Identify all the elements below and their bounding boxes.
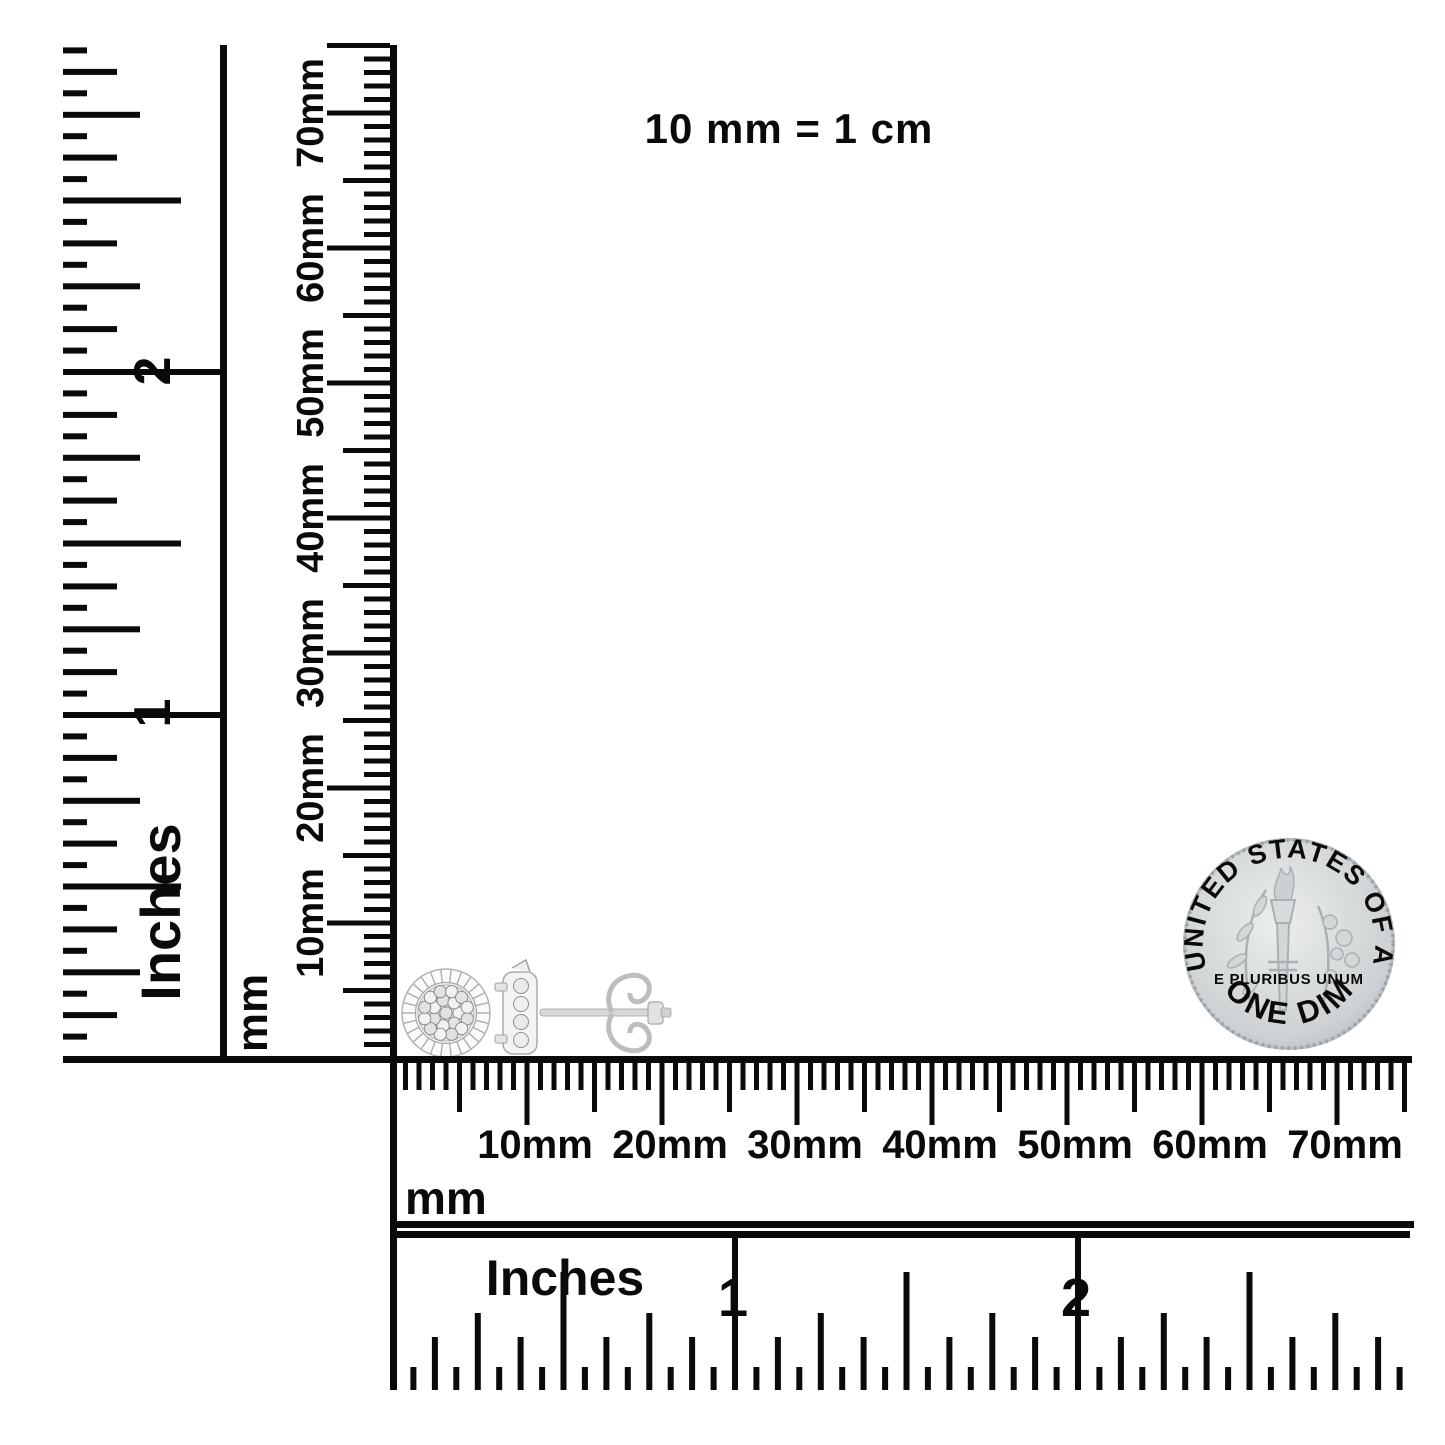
tick-mark bbox=[63, 798, 140, 804]
tick-mark bbox=[327, 246, 390, 251]
left-ruler-number-2: 2 bbox=[124, 357, 182, 386]
tick-mark bbox=[711, 1367, 717, 1390]
tick-mark bbox=[364, 705, 390, 710]
tick-mark bbox=[1213, 1063, 1218, 1090]
bottom-ruler-unit-label: Inches bbox=[486, 1250, 644, 1306]
tick-mark bbox=[63, 905, 87, 911]
tick-mark bbox=[63, 283, 140, 289]
tick-mark bbox=[1348, 1063, 1353, 1090]
tick-mark bbox=[903, 1063, 908, 1090]
tick-mark bbox=[1038, 1063, 1043, 1090]
tick-mark bbox=[364, 84, 390, 89]
tick-mark bbox=[63, 155, 117, 161]
tick-mark bbox=[364, 664, 390, 669]
tick-mark bbox=[63, 926, 117, 932]
tick-mark bbox=[1159, 1063, 1164, 1090]
tick-mark bbox=[364, 840, 390, 845]
tick-mark bbox=[1375, 1337, 1381, 1390]
tick-mark bbox=[781, 1063, 786, 1090]
tick-mark bbox=[63, 90, 87, 96]
tick-mark bbox=[364, 97, 390, 102]
mm-tick-label: 60mm bbox=[290, 193, 332, 303]
side-diamond bbox=[514, 1033, 529, 1048]
tick-mark bbox=[968, 1367, 974, 1390]
tick-mark bbox=[1247, 1272, 1253, 1390]
tick-mark bbox=[63, 305, 87, 311]
tick-mark bbox=[1011, 1367, 1017, 1390]
tick-mark bbox=[1032, 1337, 1038, 1390]
tick-mark bbox=[1119, 1063, 1124, 1090]
tick-mark bbox=[364, 867, 390, 872]
tick-mark bbox=[430, 1063, 435, 1090]
tick-mark bbox=[1065, 1063, 1070, 1125]
tick-mark bbox=[364, 556, 390, 561]
tick-mark bbox=[364, 286, 390, 291]
tick-mark bbox=[687, 1063, 692, 1090]
tick-mark bbox=[603, 1337, 609, 1390]
prong bbox=[495, 983, 507, 991]
tick-mark bbox=[689, 1337, 695, 1390]
tick-mark bbox=[1173, 1063, 1178, 1090]
tick-mark bbox=[796, 1367, 802, 1390]
cluster-diamond bbox=[434, 986, 446, 998]
tick-mark bbox=[327, 921, 390, 926]
tick-mark bbox=[808, 1063, 813, 1090]
butterfly-back-top-curl bbox=[609, 975, 650, 1012]
tick-mark bbox=[364, 124, 390, 129]
tick-mark bbox=[1092, 1063, 1097, 1090]
tick-mark bbox=[364, 394, 390, 399]
tick-mark bbox=[1132, 1063, 1137, 1112]
tick-mark bbox=[364, 1029, 390, 1034]
tick-mark bbox=[1078, 1063, 1083, 1090]
tick-mark bbox=[364, 772, 390, 777]
bottom-ruler-number-2: 2 bbox=[1061, 1268, 1091, 1328]
tick-mark bbox=[471, 1063, 476, 1090]
tick-mark bbox=[364, 57, 390, 62]
tick-mark bbox=[930, 1063, 935, 1125]
tick-mark bbox=[984, 1063, 989, 1090]
tick-mark bbox=[364, 637, 390, 642]
tick-mark bbox=[63, 412, 117, 418]
tick-mark bbox=[63, 991, 87, 997]
side-diamond bbox=[514, 979, 529, 994]
cluster-diamond bbox=[440, 1007, 452, 1019]
tick-mark bbox=[565, 1063, 570, 1090]
tick-mark bbox=[364, 151, 390, 156]
tick-mark bbox=[453, 1367, 459, 1390]
tick-mark bbox=[904, 1272, 910, 1390]
tick-mark bbox=[1308, 1063, 1313, 1090]
tick-mark bbox=[364, 138, 390, 143]
tick-mark bbox=[1294, 1063, 1299, 1090]
left-ruler-unit-label: Inches bbox=[129, 823, 192, 1000]
tick-mark bbox=[525, 1063, 530, 1125]
tick-mark bbox=[410, 1367, 416, 1390]
tick-mark bbox=[364, 948, 390, 953]
stud-side-view bbox=[495, 960, 671, 1054]
tick-mark bbox=[989, 1313, 995, 1390]
mm-tick-label: 70mm bbox=[1287, 1123, 1403, 1167]
tick-mark bbox=[63, 605, 87, 611]
tick-mark bbox=[1375, 1063, 1380, 1090]
tick-mark bbox=[660, 1063, 665, 1125]
tick-mark bbox=[839, 1367, 845, 1390]
tick-mark bbox=[496, 1367, 502, 1390]
tick-mark bbox=[63, 776, 87, 782]
diamond-cluster bbox=[419, 986, 474, 1041]
tick-mark bbox=[753, 1367, 759, 1390]
tick-mark bbox=[63, 519, 87, 525]
tick-mark bbox=[343, 448, 390, 453]
tick-mark bbox=[63, 626, 140, 632]
tick-mark bbox=[364, 273, 390, 278]
tick-mark bbox=[727, 1063, 732, 1112]
tick-mark bbox=[364, 880, 390, 885]
tick-mark bbox=[343, 853, 390, 858]
tick-mark bbox=[403, 1063, 408, 1090]
tick-mark bbox=[633, 1063, 638, 1090]
tick-mark bbox=[1105, 1063, 1110, 1090]
tick-mark bbox=[364, 489, 390, 494]
tick-mark bbox=[970, 1063, 975, 1090]
tick-mark bbox=[1402, 1063, 1407, 1112]
tick-mark bbox=[1389, 1063, 1394, 1090]
tick-mark bbox=[63, 648, 87, 654]
tick-mark bbox=[1118, 1337, 1124, 1390]
butterfly-back-bottom-curl bbox=[609, 1014, 650, 1051]
left-ruler-number-1: 1 bbox=[124, 699, 182, 728]
tick-mark bbox=[754, 1063, 759, 1090]
tick-mark bbox=[539, 1367, 545, 1390]
mm-tick-label: 20mm bbox=[612, 1123, 728, 1167]
tick-mark bbox=[1146, 1063, 1151, 1090]
tick-mark bbox=[63, 755, 117, 761]
horizontal-mm-ruler-ticks bbox=[403, 1063, 1407, 1125]
tick-mark bbox=[364, 813, 390, 818]
tick-mark bbox=[1254, 1063, 1259, 1090]
tick-mark bbox=[364, 543, 390, 548]
tick-mark bbox=[327, 381, 390, 386]
bottom-inches-ruler-top-edge bbox=[390, 1231, 1410, 1238]
tick-mark bbox=[364, 205, 390, 210]
tick-mark bbox=[916, 1063, 921, 1090]
tick-mark bbox=[364, 232, 390, 237]
tick-mark bbox=[518, 1337, 524, 1390]
tick-mark bbox=[364, 907, 390, 912]
cluster-diamond bbox=[461, 1001, 473, 1013]
tick-mark bbox=[1051, 1063, 1056, 1090]
tick-mark bbox=[1321, 1063, 1326, 1090]
mm-tick-label: 10mm bbox=[477, 1123, 593, 1167]
tick-mark bbox=[364, 975, 390, 980]
vertical-mm-ruler-labels: 10mm20mm30mm40mm50mm60mm70mm bbox=[290, 58, 332, 978]
tick-mark bbox=[775, 1337, 781, 1390]
tick-mark bbox=[63, 862, 87, 868]
tick-mark bbox=[1011, 1063, 1016, 1090]
tick-mark bbox=[925, 1367, 931, 1390]
tick-mark bbox=[1227, 1063, 1232, 1090]
tick-mark bbox=[364, 799, 390, 804]
earrings bbox=[402, 960, 671, 1057]
mm-tick-label: 60mm bbox=[1152, 1123, 1268, 1167]
tick-mark bbox=[364, 462, 390, 467]
tick-mark bbox=[63, 69, 117, 75]
tick-mark bbox=[822, 1063, 827, 1090]
tick-mark bbox=[498, 1063, 503, 1090]
tick-mark bbox=[1054, 1367, 1060, 1390]
tick-mark bbox=[862, 1063, 867, 1112]
tick-mark bbox=[882, 1367, 888, 1390]
tick-mark bbox=[327, 651, 390, 656]
prong bbox=[495, 1035, 507, 1043]
tick-mark bbox=[63, 326, 117, 332]
tick-mark bbox=[63, 133, 87, 139]
tick-mark bbox=[1204, 1337, 1210, 1390]
tick-mark bbox=[835, 1063, 840, 1090]
tick-mark bbox=[364, 529, 390, 534]
tick-mark bbox=[343, 718, 390, 723]
tick-mark bbox=[673, 1063, 678, 1090]
mm-tick-label: 40mm bbox=[882, 1123, 998, 1167]
tick-mark bbox=[1268, 1367, 1274, 1390]
tick-mark bbox=[63, 390, 87, 396]
tick-mark bbox=[63, 841, 117, 847]
tick-mark bbox=[1332, 1313, 1338, 1390]
tick-mark bbox=[364, 934, 390, 939]
tick-mark bbox=[364, 691, 390, 696]
tick-mark bbox=[432, 1337, 438, 1390]
tick-mark bbox=[364, 435, 390, 440]
tick-mark bbox=[364, 421, 390, 426]
tick-mark bbox=[63, 691, 87, 697]
tick-mark bbox=[63, 112, 140, 118]
tick-mark bbox=[538, 1063, 543, 1090]
tick-mark bbox=[646, 1313, 652, 1390]
tick-mark bbox=[63, 433, 87, 439]
torch-cup bbox=[1271, 900, 1295, 923]
tick-mark bbox=[343, 988, 390, 993]
tick-mark bbox=[943, 1063, 948, 1090]
tick-mark bbox=[364, 624, 390, 629]
tick-mark bbox=[327, 516, 390, 521]
tick-mark bbox=[364, 408, 390, 413]
tick-mark bbox=[668, 1367, 674, 1390]
tick-mark bbox=[876, 1063, 881, 1090]
tick-mark bbox=[741, 1063, 746, 1090]
tick-mark bbox=[343, 313, 390, 318]
tick-mark bbox=[364, 367, 390, 372]
tick-mark bbox=[63, 948, 87, 954]
tick-mark bbox=[818, 1313, 824, 1390]
tick-mark bbox=[957, 1063, 962, 1090]
mm-tick-label: 20mm bbox=[290, 733, 332, 843]
tick-mark bbox=[768, 1063, 773, 1090]
tick-mark bbox=[1362, 1063, 1367, 1090]
tick-mark bbox=[63, 583, 117, 589]
tick-mark bbox=[364, 745, 390, 750]
tick-mark bbox=[63, 1034, 87, 1040]
tick-mark bbox=[606, 1063, 611, 1090]
tick-mark bbox=[457, 1063, 462, 1112]
tick-mark bbox=[795, 1063, 800, 1125]
tick-mark bbox=[1161, 1313, 1167, 1390]
product-scale-image: UNITED STATES OF AMERICA ONE DIME E PLUR… bbox=[0, 0, 1445, 1445]
tick-mark bbox=[1397, 1367, 1403, 1390]
tick-mark bbox=[552, 1063, 557, 1090]
tick-mark bbox=[946, 1337, 952, 1390]
tick-mark bbox=[1186, 1063, 1191, 1090]
mm-tick-label: 30mm bbox=[290, 598, 332, 708]
tick-mark bbox=[327, 786, 390, 791]
tick-mark bbox=[63, 476, 87, 482]
vertical-mm-ruler-edge bbox=[390, 45, 397, 1390]
scale-note: 10 mm = 1 cm bbox=[645, 105, 934, 152]
tick-mark bbox=[364, 570, 390, 575]
tick-mark bbox=[364, 259, 390, 264]
mm-tick-label: 40mm bbox=[290, 463, 332, 573]
earring-post bbox=[540, 1009, 662, 1016]
tick-mark bbox=[646, 1063, 651, 1090]
tick-mark bbox=[364, 597, 390, 602]
tick-mark bbox=[364, 826, 390, 831]
tick-mark bbox=[327, 111, 390, 116]
tick-mark bbox=[63, 47, 87, 53]
tick-mark bbox=[364, 327, 390, 332]
tick-mark bbox=[63, 498, 117, 504]
tick-mark bbox=[700, 1063, 705, 1090]
tick-mark bbox=[63, 1012, 117, 1018]
tick-mark bbox=[484, 1063, 489, 1090]
tick-mark bbox=[63, 562, 87, 568]
tick-mark bbox=[63, 240, 117, 246]
tick-mark bbox=[889, 1063, 894, 1090]
tick-mark bbox=[63, 198, 181, 204]
tick-mark bbox=[364, 610, 390, 615]
tick-mark bbox=[343, 178, 390, 183]
tick-mark bbox=[364, 300, 390, 305]
tick-mark bbox=[364, 354, 390, 359]
horizontal-mm-ruler-unit-label: mm bbox=[405, 1172, 487, 1224]
tick-mark bbox=[592, 1063, 597, 1112]
tick-mark bbox=[619, 1063, 624, 1090]
tick-mark bbox=[364, 894, 390, 899]
tick-mark bbox=[1311, 1367, 1317, 1390]
tick-mark bbox=[343, 583, 390, 588]
tick-mark bbox=[582, 1367, 588, 1390]
tick-mark bbox=[63, 176, 87, 182]
dime-coin: UNITED STATES OF AMERICA ONE DIME E PLUR… bbox=[0, 0, 1399, 1050]
tick-mark bbox=[63, 219, 87, 225]
tick-mark bbox=[364, 1015, 390, 1020]
tick-mark bbox=[1267, 1063, 1272, 1112]
vertical-mm-ruler-unit-label: mm bbox=[228, 974, 277, 1052]
tick-mark bbox=[364, 340, 390, 345]
tick-mark bbox=[1354, 1367, 1360, 1390]
prong bbox=[512, 960, 530, 972]
side-diamond bbox=[514, 997, 529, 1012]
tick-mark bbox=[1182, 1367, 1188, 1390]
tick-mark bbox=[1200, 1063, 1205, 1125]
tick-mark bbox=[364, 961, 390, 966]
coin-motto: E PLURIBUS UNUM bbox=[1214, 971, 1364, 988]
tick-mark bbox=[475, 1313, 481, 1390]
vertical-mm-ruler-ticks bbox=[327, 43, 390, 1047]
tick-mark bbox=[364, 192, 390, 197]
tick-mark bbox=[63, 819, 87, 825]
tick-mark bbox=[63, 669, 117, 675]
tick-mark bbox=[1240, 1063, 1245, 1090]
tick-mark bbox=[417, 1063, 422, 1090]
tick-mark bbox=[511, 1063, 516, 1090]
horizontal-mm-ruler-labels: 10mm20mm30mm40mm50mm60mm70mm bbox=[477, 1123, 1403, 1167]
tick-mark bbox=[997, 1063, 1002, 1112]
tick-mark bbox=[364, 165, 390, 170]
tick-mark bbox=[63, 541, 181, 547]
tick-mark bbox=[1096, 1367, 1102, 1390]
tick-mark bbox=[63, 455, 140, 461]
tick-mark bbox=[364, 219, 390, 224]
tick-mark bbox=[364, 759, 390, 764]
mm-ruler-bottom-edge bbox=[390, 1221, 1414, 1228]
tick-mark bbox=[63, 733, 87, 739]
tick-mark bbox=[1024, 1063, 1029, 1090]
tick-mark bbox=[364, 1002, 390, 1007]
tick-mark bbox=[1225, 1367, 1231, 1390]
mm-tick-label: 70mm bbox=[290, 58, 332, 168]
side-diamond bbox=[514, 1015, 529, 1030]
mm-tick-label: 50mm bbox=[1017, 1123, 1133, 1167]
tick-mark bbox=[364, 502, 390, 507]
tick-mark bbox=[625, 1367, 631, 1390]
tick-mark bbox=[861, 1337, 867, 1390]
tick-mark bbox=[364, 678, 390, 683]
left-inches-ruler-edge bbox=[220, 45, 227, 1059]
tick-mark bbox=[364, 475, 390, 480]
tick-mark bbox=[444, 1063, 449, 1090]
tick-mark bbox=[327, 43, 390, 48]
cluster-diamond bbox=[446, 1028, 458, 1040]
scale-diagram: UNITED STATES OF AMERICA ONE DIME E PLUR… bbox=[0, 0, 1445, 1445]
cluster-diamond bbox=[419, 1013, 431, 1025]
horizontal-baseline bbox=[63, 1056, 1412, 1063]
tick-mark bbox=[714, 1063, 719, 1090]
tick-mark bbox=[1335, 1063, 1340, 1125]
tick-mark bbox=[364, 70, 390, 75]
tick-mark bbox=[579, 1063, 584, 1090]
stud-front-view bbox=[402, 969, 490, 1057]
mm-tick-label: 10mm bbox=[290, 868, 332, 978]
tick-mark bbox=[364, 1042, 390, 1047]
tick-mark bbox=[1289, 1337, 1295, 1390]
coin-bottom-legend: ONE DIME bbox=[0, 0, 1361, 1032]
tick-mark bbox=[63, 262, 87, 268]
tick-mark bbox=[849, 1063, 854, 1090]
tick-mark bbox=[1139, 1367, 1145, 1390]
tick-mark bbox=[63, 348, 87, 354]
mm-tick-label: 30mm bbox=[747, 1123, 863, 1167]
mm-tick-label: 50mm bbox=[290, 328, 332, 438]
tick-mark bbox=[364, 732, 390, 737]
tick-mark bbox=[1281, 1063, 1286, 1090]
post-tip bbox=[661, 1008, 671, 1017]
bottom-ruler-number-1: 1 bbox=[718, 1268, 748, 1328]
